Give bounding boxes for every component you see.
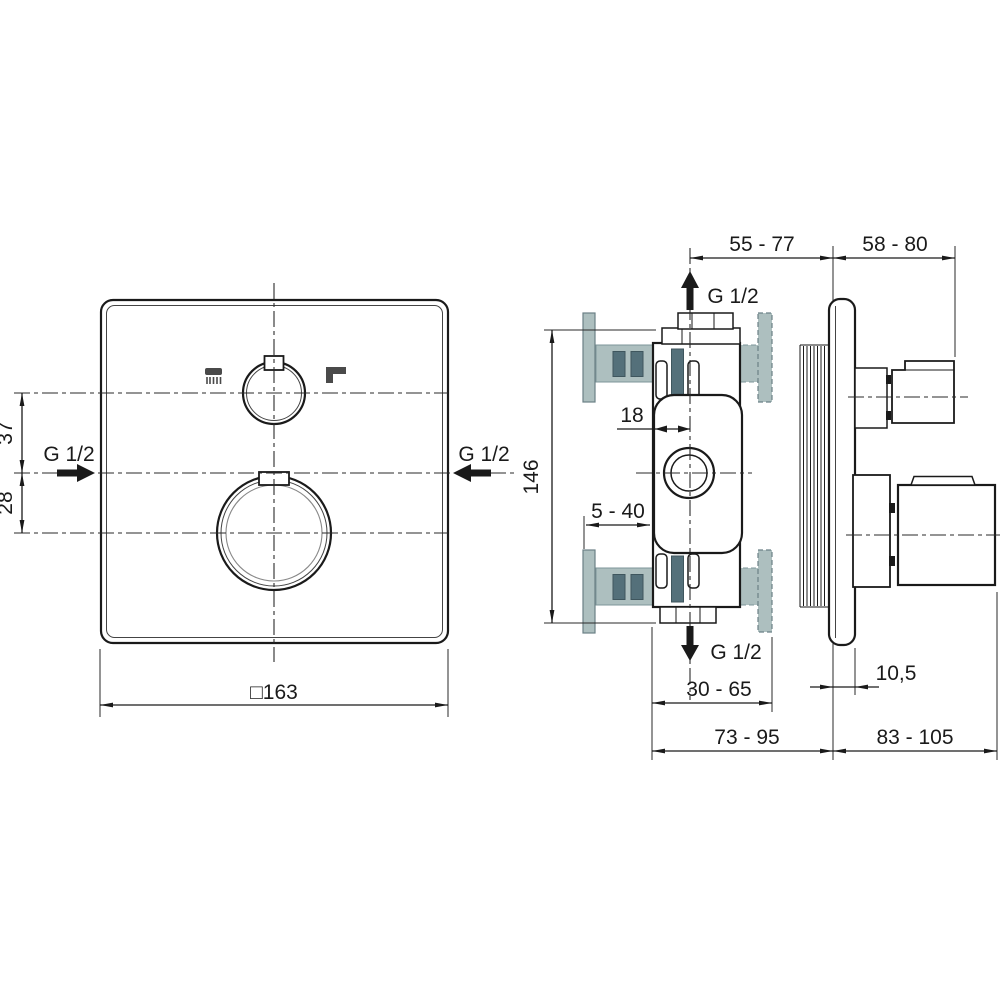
flange-bar-top-left [583,313,595,402]
bottom-fitting [660,607,716,623]
inlet-left-arrow-shaft [57,470,77,477]
hatch-mark [613,352,625,377]
inlet-left-label: G 1/2 [43,443,94,466]
front-view: 37 28 G 1/2 G 1/2 □163 [0,283,515,717]
inlet-right-label: G 1/2 [458,443,509,466]
flange-bar-bottom-left [583,550,595,633]
flange-bar-bottom-right [758,550,772,632]
hatch-mark [631,575,643,600]
inlet-right-arrow-shaft [471,470,491,477]
dimension-37: 37 [0,393,22,473]
top-fitting [662,313,740,344]
dimension-83-105-label: 83 - 105 [876,726,953,749]
outlet-bottom-label: G 1/2 [710,641,761,664]
dimension-width-label: □163 [250,681,298,704]
hatch-mark [672,349,684,398]
volume-handle-side [853,475,995,587]
inlet-left-arrow-head [77,464,95,482]
outlet-bottom-arrow-shaft [687,626,694,646]
dimension-55-77: 55 - 77 [690,233,833,258]
faceplate-side [829,299,855,645]
drawing-svg: 37 28 G 1/2 G 1/2 □163 [0,0,1000,1000]
inlet-right-arrow-head [453,464,471,482]
technical-drawing-mixer-valve: 37 28 G 1/2 G 1/2 □163 [0,0,1000,1000]
dimension-28-label: 28 [0,491,17,514]
dimension-5-40-label: 5 - 40 [591,500,645,523]
flange-bar-top-right [758,313,772,402]
hatch-mark [613,575,625,600]
dimension-146-label: 146 [520,459,543,494]
dimension-37-label: 37 [0,421,17,444]
dimension-10-5-label: 10,5 [876,662,917,685]
hatch-mark [631,352,643,377]
dimension-73-95-label: 73 - 95 [714,726,779,749]
threaded-sleeve [800,345,829,607]
outlet-top-arrow-head [681,271,699,288]
outlet-top-arrow-shaft [687,286,694,310]
dimension-10-5: 10,5 [810,648,916,695]
side-view: G 1/2 G 1/2 55 - 77 58 - 80 146 [520,233,1000,760]
hatch-mark [672,556,684,602]
dimension-30-65-label: 30 - 65 [686,678,751,701]
dimension-18-label: 18 [620,404,643,427]
dimension-5-40: 5 - 40 [584,500,650,549]
inlet-left: G 1/2 [43,443,95,482]
outlet-top: G 1/2 [681,271,759,310]
dimension-28: 28 [0,473,22,533]
inlet-right: G 1/2 [453,443,510,482]
temp-handle-side [855,361,954,428]
dimension-73-95: 73 - 95 [652,726,833,751]
outlet-bottom-arrow-head [681,645,699,661]
outlet-bottom: G 1/2 [681,626,762,664]
outlet-top-label: G 1/2 [707,285,758,308]
dimension-58-80-label: 58 - 80 [862,233,927,256]
dimension-55-77-label: 55 - 77 [729,233,794,256]
